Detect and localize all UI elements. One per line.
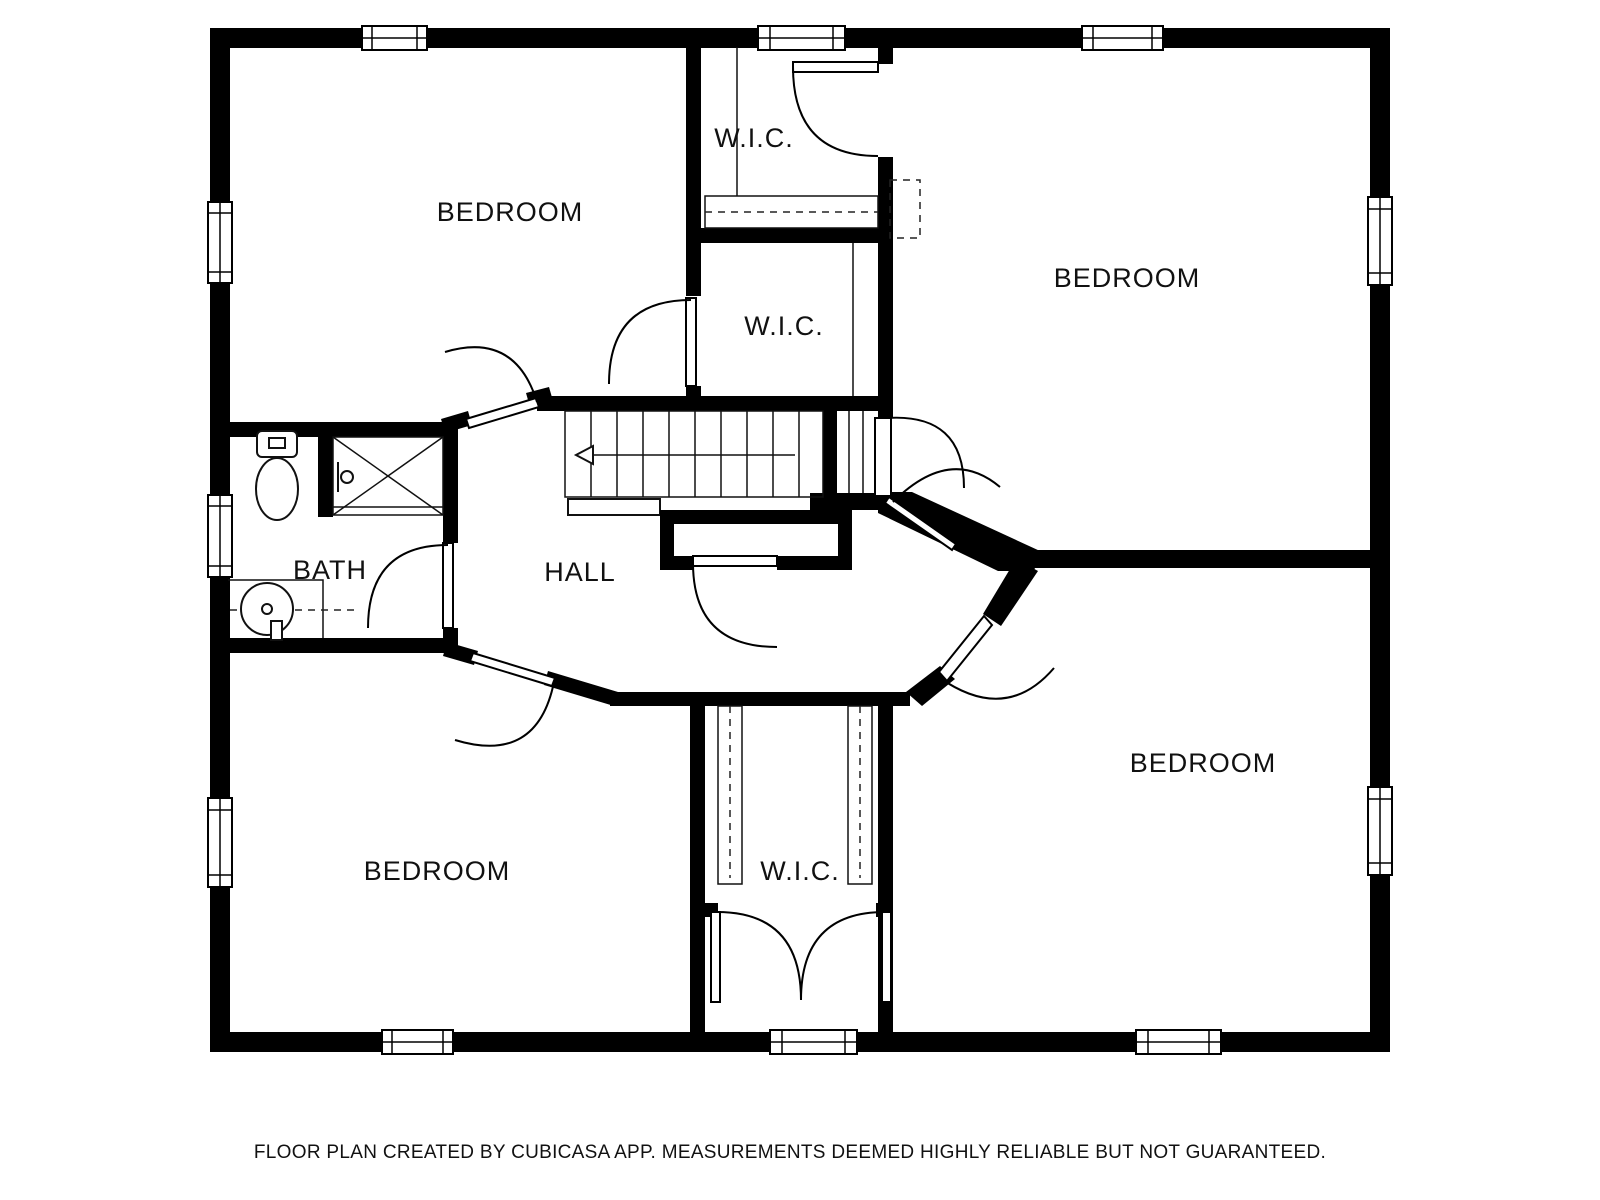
staircase [565,411,863,570]
wall-stair-side [823,411,837,497]
door-swing-arc [693,563,777,647]
window [208,495,232,577]
wall-angled-se [983,559,1038,626]
wall [686,47,701,296]
window [770,1030,857,1054]
window [1368,787,1392,875]
window [1136,1030,1221,1054]
footer-disclaimer: FLOOR PLAN CREATED BY CUBICASA APP. MEAS… [254,1142,1326,1163]
room-label-bedroom-bottom-left: BEDROOM [364,856,511,886]
floor-plan-page: BEDROOM W.I.C. BEDROOM W.I.C. BATH HALL … [0,0,1600,1200]
door-leaf [686,298,696,386]
wall [878,47,893,64]
door-leaf [793,62,878,72]
door-leaf [443,543,453,628]
wall-outer-right [1370,28,1390,1052]
room-label-wic-top: W.I.C. [714,123,794,153]
door-leaf [939,616,992,681]
room-label-bedroom-top-left: BEDROOM [437,197,584,227]
room-label-bedroom-top-right: BEDROOM [1054,263,1201,293]
bath-fixtures [228,431,443,640]
door-swing-arc [609,300,691,384]
room-label-hall: HALL [544,557,616,587]
door-swing-arc [445,347,537,402]
window [758,26,845,50]
window [1368,197,1392,285]
door-leaf [466,398,539,428]
door-swing-arc [455,682,554,746]
door-leaf [882,912,891,1002]
sink-icon [228,580,356,640]
wall-stair-top [537,396,893,411]
floor-plan-drawing: BEDROOM W.I.C. BEDROOM W.I.C. BATH HALL … [0,0,1600,1200]
wall-wic-divider [701,228,878,243]
door-leaf [470,653,555,686]
stairwell-guard [660,556,693,570]
door-swing-arc [801,912,885,1000]
wall-angled-ne [878,492,1040,571]
toilet-icon [269,438,285,448]
window [208,202,232,283]
room-label-wic-bottom: W.I.C. [760,856,840,886]
windows [208,26,1392,1054]
wall-bath-east [443,437,458,543]
outer-walls [210,28,1390,1052]
wall-hall-south [610,692,910,706]
window [382,1030,453,1054]
stairwell-guard [777,556,852,570]
stair-railing [568,499,660,515]
stairwell-guard [660,510,852,524]
stair-outline [565,411,823,497]
wall-angled-sw [544,671,618,706]
door-leaf [711,912,720,1002]
door-leaf [693,556,777,566]
wall-bath-south [228,638,458,653]
window [362,26,427,50]
room-label-bath: BATH [293,555,367,585]
wall-bedrooms-divider [1032,550,1370,568]
window [208,798,232,887]
window [1082,26,1163,50]
door-swing-arc [793,67,878,156]
room-label-bedroom-bottom-right: BEDROOM [1130,748,1277,778]
door-swing-arc [717,912,801,1000]
wall-wic-west [690,692,705,1032]
door-swing-arc [940,668,1054,699]
door-swing-arc [368,545,448,628]
shower-icon [333,437,443,515]
stair-direction-arrow-icon [576,446,593,464]
wall-shower [318,437,333,517]
room-label-wic-middle: W.I.C. [744,311,824,341]
dashed-access-panel [890,180,920,238]
toilet-icon [256,458,298,520]
door-leaf [875,418,891,496]
